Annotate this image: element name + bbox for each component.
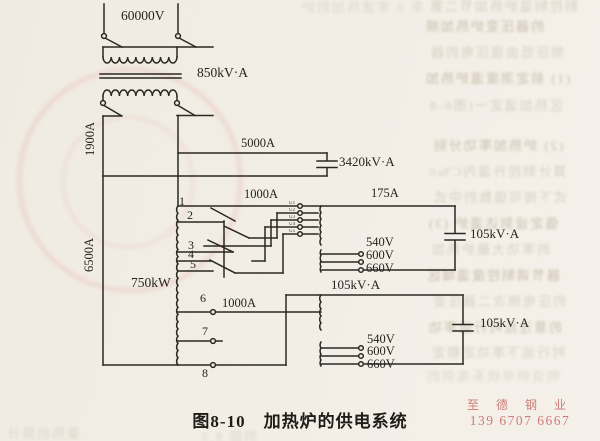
hv-disconnect-switches <box>102 34 213 47</box>
upper-secondary-600v-label: 600V <box>366 249 394 262</box>
watermark: 至 德 钢 业 139 6707 6667 <box>452 399 588 428</box>
winding-tap-u2-label: U2 <box>289 208 295 213</box>
main-transformer-rating-label: 850kV·A <box>197 66 248 80</box>
main-transformer-symbol <box>100 47 181 101</box>
tap-number-5: 5 <box>190 258 196 270</box>
upper-capacitor-symbol <box>445 206 465 270</box>
bus-lines <box>103 116 327 366</box>
left-feeder-current-label: 1900A <box>65 114 115 164</box>
upper-primary-current-label: 175A <box>371 187 399 200</box>
left-bus-current-label: 6500A <box>64 230 114 280</box>
lower-tap-current-label: 1000A <box>222 297 256 310</box>
watermark-company: 至 德 钢 业 <box>452 399 588 411</box>
lower-secondary-660v-label: 660V <box>367 358 395 371</box>
circuit-diagram <box>0 0 600 441</box>
tap-number-1: 1 <box>179 195 185 207</box>
capacitor-branch-current-label: 5000A <box>241 137 275 150</box>
scanned-book-page: 制控制温炉热加节二第 率 8 率速热加的炉 的器压变炉热加顺 侧压低由值压电的器… <box>0 0 600 441</box>
tap-number-7: 7 <box>202 325 208 337</box>
upper-secondary-660v-label: 660V <box>366 262 394 275</box>
watermark-phone: 139 6707 6667 <box>452 414 588 428</box>
winding-tap-u3-label: U3 <box>289 215 295 220</box>
winding-tap-u4-label: U4 <box>289 222 295 227</box>
lower-secondary-600v-label: 600V <box>367 345 395 358</box>
lower-capacitor-rating-label: 105kV·A <box>480 316 529 329</box>
upper-capacitor-rating-label: 105kV·A <box>470 227 519 240</box>
main-capacitor-rating-label: 3420kV·A <box>339 155 395 168</box>
lower-capacitor-symbol <box>453 295 473 364</box>
lower-line-rating-label: 105kV·A <box>331 278 380 291</box>
winding-tap-u1-label: U1 <box>289 201 295 206</box>
figure-caption: 图8-10 加热炉的供电系统 <box>140 407 460 432</box>
tap-switch-network <box>178 204 455 277</box>
winding-tap-u5-label: U5 <box>289 229 295 234</box>
tap-number-8: 8 <box>202 367 208 379</box>
upper-secondary-540v-label: 540V <box>366 236 394 249</box>
supply-voltage-label: 60000V <box>121 9 165 23</box>
tap-number-6: 6 <box>200 292 206 304</box>
tap-number-2: 2 <box>187 209 193 221</box>
furnace-power-label: 750kW <box>131 276 171 290</box>
lv-disconnect-switches <box>101 101 213 116</box>
upper-tap-current-label: 1000A <box>244 188 278 201</box>
main-capacitor-symbol <box>317 153 337 176</box>
